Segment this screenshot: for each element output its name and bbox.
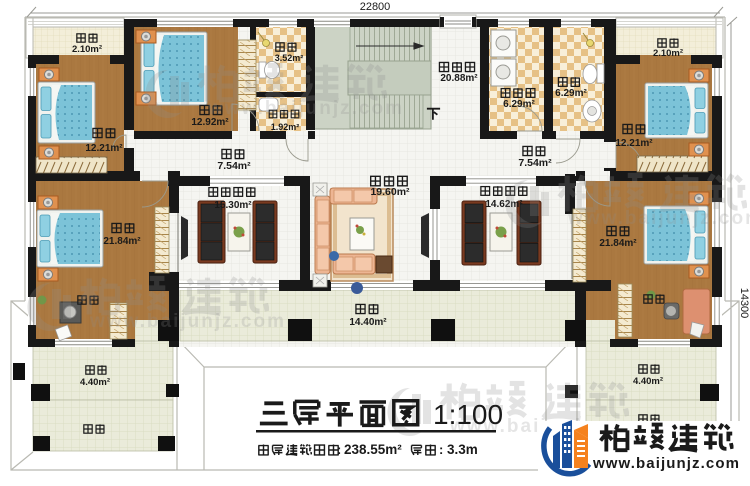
svg-text:21.84m²: 21.84m² [103, 236, 141, 247]
svg-text:12.21m²: 12.21m² [85, 143, 123, 154]
svg-text::: : [439, 442, 443, 457]
svg-text:3.52m²: 3.52m² [275, 53, 304, 63]
svg-text:www.baijunjz.com: www.baijunjz.com [567, 208, 750, 229]
svg-text:3.3m: 3.3m [447, 442, 478, 457]
svg-text:12.21m²: 12.21m² [615, 138, 653, 149]
svg-text:15.30m²: 15.30m² [214, 200, 252, 211]
svg-text:20.88m²: 20.88m² [440, 73, 478, 84]
svg-text::: : [337, 442, 341, 457]
svg-text:14300: 14300 [738, 288, 750, 319]
svg-text:4.40m²: 4.40m² [633, 376, 663, 387]
svg-text:2.10m²: 2.10m² [72, 44, 102, 55]
svg-text:22800: 22800 [360, 1, 391, 13]
svg-text:21.84m²: 21.84m² [599, 238, 637, 249]
svg-text:19.60m²: 19.60m² [370, 186, 410, 198]
svg-text:www.baijunjz.com: www.baijunjz.com [207, 98, 404, 119]
svg-text:1:100: 1:100 [433, 399, 503, 430]
svg-text:6.29m²: 6.29m² [555, 88, 587, 99]
svg-text:14.40m²: 14.40m² [349, 317, 387, 328]
svg-text:7.54m²: 7.54m² [518, 157, 552, 169]
svg-text:238.55m²: 238.55m² [344, 442, 402, 457]
svg-text:1.92m²: 1.92m² [271, 122, 300, 132]
svg-text:www.baijunjz.com: www.baijunjz.com [89, 311, 286, 332]
svg-text:7.54m²: 7.54m² [217, 160, 251, 172]
svg-text:2.10m²: 2.10m² [653, 48, 683, 59]
svg-text:4.40m²: 4.40m² [80, 377, 110, 388]
svg-text:6.29m²: 6.29m² [503, 99, 535, 110]
svg-text:www.baijunjz.com: www.baijunjz.com [592, 455, 740, 472]
svg-text:14.62m²: 14.62m² [485, 199, 523, 210]
